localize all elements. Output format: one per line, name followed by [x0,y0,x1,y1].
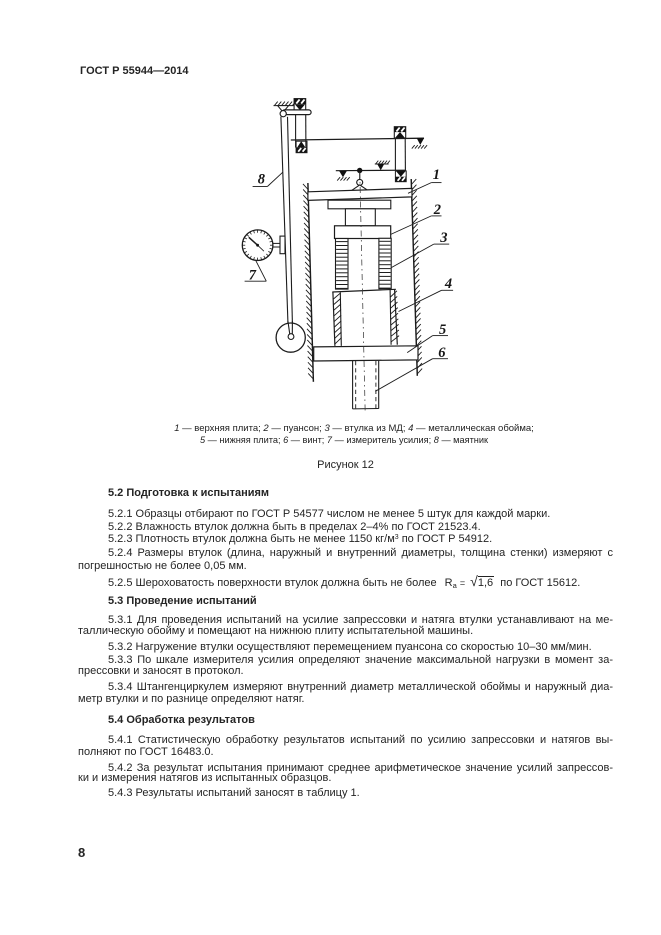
svg-text:3: 3 [439,230,447,246]
svg-text:8: 8 [258,172,266,188]
svg-text:2: 2 [433,202,441,218]
svg-text:4: 4 [444,276,452,292]
svg-text:1: 1 [433,167,440,183]
